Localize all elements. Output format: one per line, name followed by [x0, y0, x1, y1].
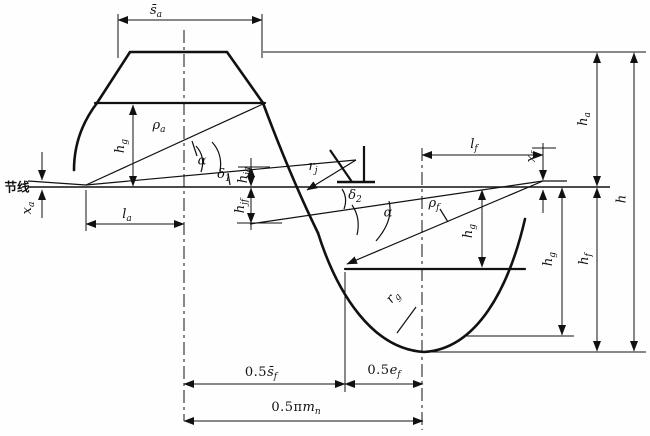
- label-lf: lf: [470, 138, 478, 154]
- rg-radius-tick: [397, 307, 416, 333]
- label-half-pi-mn: 0.5πmn: [271, 401, 320, 417]
- rho-f-radius-line: [347, 181, 543, 264]
- label-hg-tall: hg: [542, 252, 558, 266]
- delta2-arc: [342, 189, 346, 209]
- delta2-arc-2: [352, 205, 358, 235]
- label-la: la: [122, 208, 132, 224]
- perpendicular-mark-icon: [330, 146, 375, 182]
- label-delta1: δ1: [217, 168, 231, 184]
- reference-lines: [263, 52, 646, 352]
- label-rj: rj: [308, 160, 317, 176]
- label-rho-a: ρa: [152, 119, 165, 135]
- label-hjf: hjf: [234, 199, 250, 214]
- label-hja: hja: [237, 167, 253, 184]
- label-hg-inner: hg: [462, 224, 478, 238]
- label-hg-upper: hg: [114, 139, 130, 153]
- label-delta2: δ2: [348, 189, 362, 205]
- gear-tooth-profile-diagram: 节线 s̄a xa la hg ρa α δ1 hja hjf rj δ2 α …: [0, 0, 650, 436]
- label-pitch-line: 节线: [4, 177, 29, 196]
- rho-a-tick: [192, 141, 197, 156]
- label-half-ef: 0.5ef: [367, 364, 400, 380]
- rho-f-tick: [440, 209, 448, 222]
- label-ha: ha: [577, 112, 593, 126]
- label-hf: hf: [578, 253, 594, 265]
- tooth-outline: [74, 52, 525, 352]
- left-flank-curve: [74, 103, 97, 170]
- tooth-crest: [97, 52, 263, 103]
- label-alpha-lower: α: [384, 207, 393, 220]
- label-h: h: [616, 195, 629, 203]
- label-alpha-upper: α: [198, 155, 207, 168]
- diagram-canvas: [0, 0, 650, 436]
- label-xf: xf: [525, 152, 541, 163]
- label-sa: s̄a: [150, 4, 162, 20]
- label-half-sf: 0.5s̄f: [245, 366, 277, 382]
- label-xa: xa: [21, 202, 37, 215]
- profile-reference-line: [28, 181, 86, 185]
- label-rho-f: ρf: [429, 197, 440, 213]
